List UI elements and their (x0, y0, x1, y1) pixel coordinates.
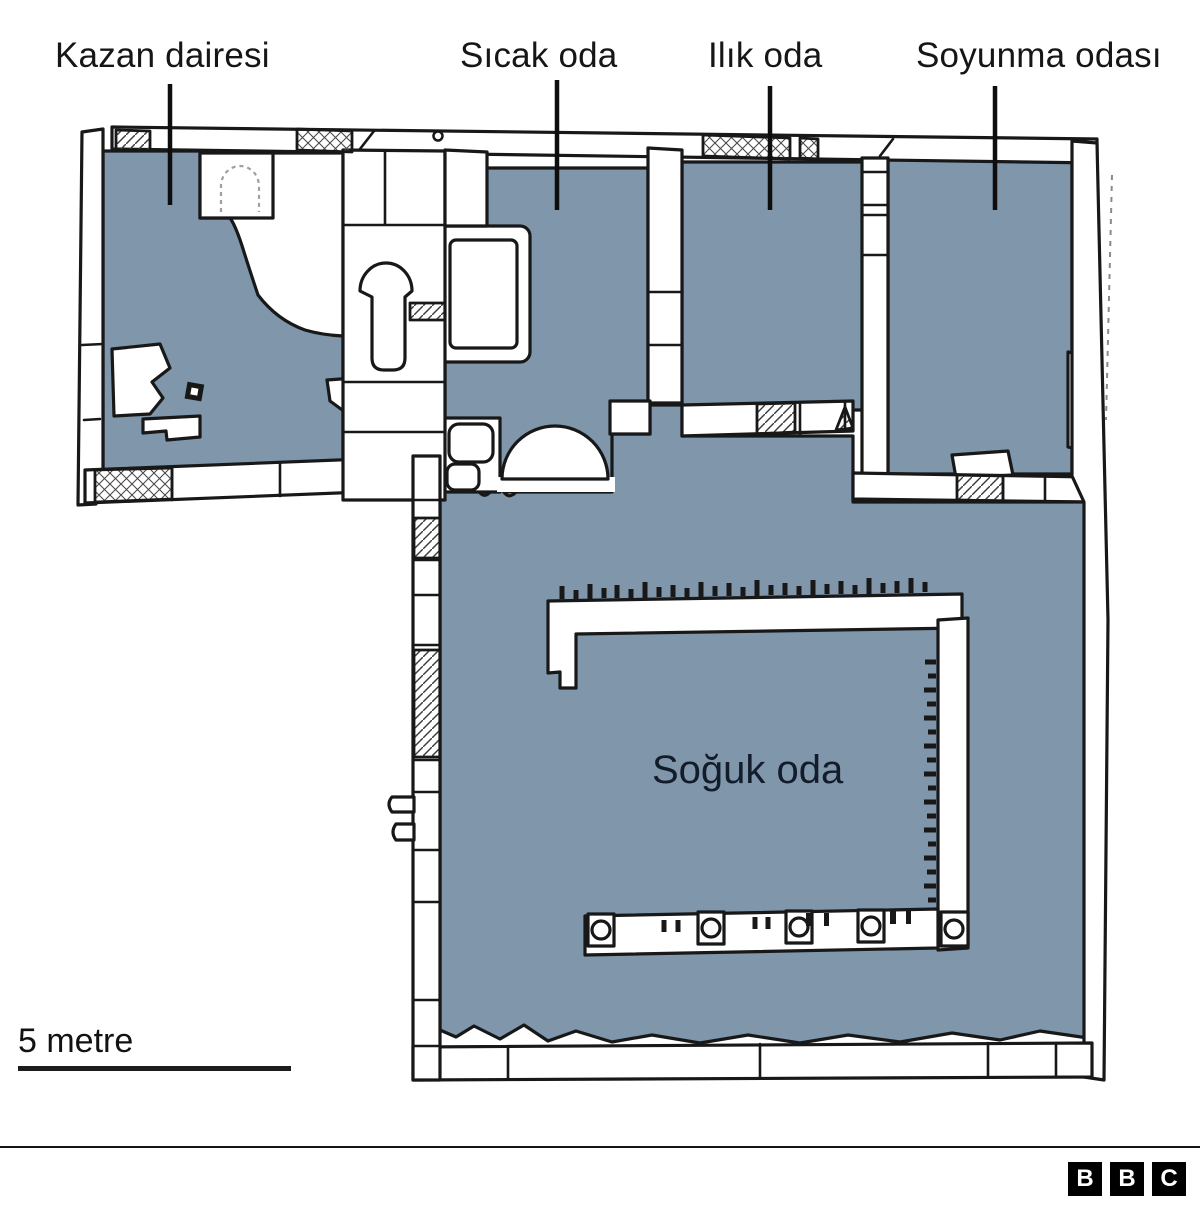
hatch-topwall-small (800, 138, 818, 159)
bbc-logo-letter-1: B (1068, 1162, 1102, 1196)
label-ilik-oda: Ilık oda (708, 36, 822, 76)
hatch-cluster (410, 303, 445, 320)
footer-divider (0, 1146, 1200, 1148)
sicak-ilik-divider (648, 148, 682, 403)
colonnade-right-band (938, 618, 968, 950)
label-sicak-oda: Sıcak oda (460, 36, 617, 76)
hatch-ilik-bottom (757, 403, 795, 434)
scale-label: 5 metre (18, 1022, 133, 1061)
bottom-outer-wall (413, 1043, 1092, 1080)
sicak-platform (437, 226, 530, 362)
hatch-topwall-ilik (703, 135, 790, 159)
hatch-topwall-left (297, 129, 352, 152)
label-kazan-dairesi: Kazan dairesi (55, 36, 270, 76)
room-soyunma-odasi (888, 160, 1072, 474)
infographic-canvas: Kazan dairesi Sıcak oda Ilık oda Soyunma… (0, 0, 1200, 1207)
floor-plan-svg (0, 0, 1200, 1207)
hatch-soyunma-bottom (957, 475, 1003, 501)
topwall-dot (434, 132, 443, 141)
room-ilik-oda (682, 162, 868, 410)
kazan-column-marker (185, 382, 205, 402)
sicak-blob-2 (447, 464, 479, 490)
hatch-kazan-bottom (95, 468, 172, 502)
label-soyunma-odasi: Soyunma odası (916, 36, 1162, 76)
sicak-corner-block (445, 150, 487, 226)
hatch-leftwall-1 (414, 518, 440, 558)
left-outer-wall (78, 129, 103, 505)
label-soguk-oda: Soğuk oda (652, 748, 843, 793)
bbc-logo: B B C (1068, 1162, 1186, 1196)
bbc-logo-letter-2: B (1110, 1162, 1144, 1196)
bbc-logo-letter-3: C (1152, 1162, 1186, 1196)
hatch-topwall-wedge (116, 130, 150, 151)
door-hook-2 (393, 824, 414, 840)
sicak-blob-1 (449, 424, 493, 462)
hatch-leftwall-2 (414, 650, 440, 757)
kazan-top-block (200, 153, 273, 218)
door-hook-1 (389, 797, 414, 812)
scale-bar (18, 1066, 291, 1071)
divider-foot (610, 401, 650, 434)
